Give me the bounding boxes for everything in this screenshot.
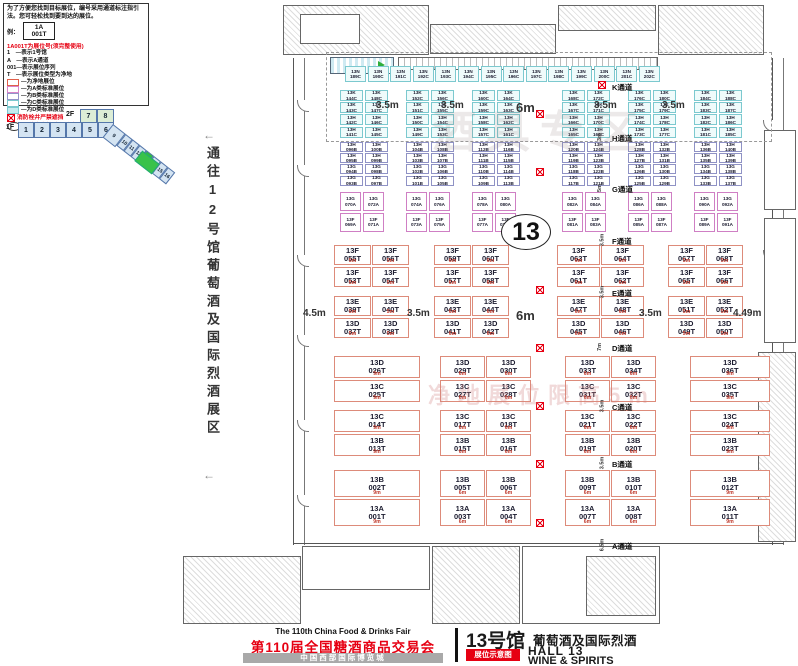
booth-13f-089a[interactable]: 13F089A [694,213,715,232]
booth-13a-008t[interactable]: 13A008T6m [611,499,656,526]
venue-name: 中国西部国际博览城 [243,653,443,663]
booth-13n-196c[interactable]: 13N196C [503,66,524,82]
booth-13g-138b[interactable]: 13G138B [719,164,742,174]
booth-13g-118b[interactable]: 13G118B [562,164,585,174]
booth-13f-083a[interactable]: 13F083A [585,213,606,232]
booth-13h-182c[interactable]: 13H182C [694,114,717,125]
booth-13b-019t[interactable]: 13B019T6m [565,434,610,456]
watermark-top: 酒具专区 [432,96,648,160]
booth-13h-139b[interactable]: 13H139B [719,153,742,163]
booth-13n-200c[interactable]: 13N200C [594,66,615,82]
booth-13e-047t[interactable]: 13E047T6m [557,296,600,316]
booth-13n-198c[interactable]: 13N198C [548,66,569,82]
booth-13f-061t[interactable]: 13F061T6m [557,267,600,287]
booth-13f-060t[interactable]: 13F060T6m [472,245,509,265]
booth-13c-025t[interactable]: 13C025T9m [334,380,420,402]
booth-13h-095b[interactable]: 13H095B [340,153,363,163]
booth-13c-035t[interactable]: 13C035T9m [690,380,770,402]
booth-13c-024t[interactable]: 13C024T9m [690,410,770,432]
booth-13g-113b[interactable]: 13G113B [497,176,520,186]
footer: The 110th China Food & Drinks Fair 第110届… [0,624,798,666]
left-wall [293,58,305,545]
booth-13e-044t[interactable]: 13E044T6m [472,296,509,316]
booth-13n-194c[interactable]: 13N194C [458,66,479,82]
booth-13d-036t[interactable]: 13D036T9m [690,356,770,378]
booth-13g-137b[interactable]: 13G137B [719,176,742,186]
booth-13f-062t[interactable]: 13F062T6m [601,267,644,287]
booth-13e-048t[interactable]: 13E048T6m [601,296,644,316]
booth-13k-187c[interactable]: 13K187C [719,102,742,113]
booth-13b-009t[interactable]: 13B009T6m [565,470,610,497]
booth-13c-017t[interactable]: 13C017T6m [440,410,485,432]
booth-13e-040t[interactable]: 13E040T5m [372,296,409,316]
booth-13f-059t[interactable]: 13F059T6m [434,245,471,265]
booth-13g-074a[interactable]: 13G074A [406,192,427,211]
booth-13h-142c[interactable]: 13H142C [340,114,363,125]
booth-13h-103b[interactable]: 13H103B [406,153,429,163]
booth-13b-012t[interactable]: 13B012T9m [690,470,770,497]
booth-13d-046t[interactable]: 13D046T6m [601,318,644,338]
aisle-label-a: A通道 [612,541,632,552]
booth-13g-106b[interactable]: 13G106B [431,164,454,174]
booth-13c-022t[interactable]: 13C022T6m [611,410,656,432]
booth-13g-070a[interactable]: 13G070A [340,192,361,211]
booth-13d-041t[interactable]: 13D041T6m [434,318,471,338]
fire-hydrant-icon [536,460,544,468]
hall-plan: 酒具专区 净地展位限高5m 13 13N189C13N190C13N191C13… [0,0,798,666]
booth-13a-011t[interactable]: 13A011T9m [690,499,770,526]
fair-name-en: The 110th China Food & Drinks Fair [238,627,448,636]
floor-plan-page: 为了方便您找到目标展位，编号采用通道标注指引法。您可轻松找到要到达的展位。 例：… [0,0,798,666]
booth-13g-117b[interactable]: 13G117B [562,176,585,186]
booth-13g-094b[interactable]: 13G094B [340,164,363,174]
booth-13b-013t[interactable]: 13B013T9m [334,434,420,456]
fire-hydrant-icon [536,344,544,352]
booth-13h-178c[interactable]: 13H178C [653,114,676,125]
booth-13g-126b[interactable]: 13G126B [628,164,651,174]
booth-13h-132b[interactable]: 13H132B [653,142,676,152]
booth-13g-082a[interactable]: 13G082A [562,192,583,211]
booth-13b-023t[interactable]: 13B023T9m [690,434,770,456]
booth-13f-066t[interactable]: 13F066T5m [706,267,743,287]
booth-13f-087a[interactable]: 13F087A [651,213,672,232]
building-top-mid [430,24,556,54]
booth-13g-092a[interactable]: 13G092A [717,192,738,211]
booth-13c-021t[interactable]: 13C021T6m [565,410,610,432]
booth-13d-034t[interactable]: 13D034T6m [611,356,656,378]
booth-13e-043t[interactable]: 13E043T6m [434,296,471,316]
booth-13c-014t[interactable]: 13C014T9m [334,410,420,432]
booth-13c-018t[interactable]: 13C018T6m [486,410,531,432]
booth-13d-033t[interactable]: 13D033T6m [565,356,610,378]
fire-hydrant-icon [536,168,544,176]
dimension-label: 3.5m [407,308,430,319]
booth-13f-077a[interactable]: 13F077A [472,213,493,232]
aisle-width-label: 3.5m [599,457,605,470]
booth-13f-065t[interactable]: 13F065T5m [668,267,705,287]
booth-13k-188c[interactable]: 13K188C [719,90,742,101]
booth-13d-030t[interactable]: 13D030T6m [486,356,531,378]
fire-hydrant-icon [536,519,544,527]
booth-13a-004t[interactable]: 13A004T6m [486,499,531,526]
booth-13h-181c[interactable]: 13H181C [694,127,717,138]
booth-13g-088a[interactable]: 13G088A [651,192,672,211]
building-bottom-mid-a [302,546,430,590]
booth-13h-141c[interactable]: 13H141C [340,127,363,138]
booth-13d-042t[interactable]: 13D042T6m [472,318,509,338]
booth-13n-201c[interactable]: 13N201C [616,66,637,82]
booth-13h-149c[interactable]: 13H149C [406,127,429,138]
booth-13a-001t[interactable]: 13A001T9m [334,499,420,526]
booth-13g-090a[interactable]: 13G090A [694,192,715,211]
aisle-width-label: 3.5m [599,234,605,247]
aisle-label-f: F通道 [612,236,632,247]
booth-13f-073a[interactable]: 13F073A [406,213,427,232]
booth-13h-150c[interactable]: 13H150C [406,114,429,125]
booth-13f-081a[interactable]: 13F081A [562,213,583,232]
booth-13f-068t[interactable]: 13F068T5m [706,245,743,265]
booth-13h-136b[interactable]: 13H136B [694,142,717,152]
booth-13f-091a[interactable]: 13F091A [717,213,738,232]
booth-13f-056t[interactable]: 13F056T5m [372,245,409,265]
booth-13g-097b[interactable]: 13G097B [365,176,388,186]
booth-13n-191c[interactable]: 13N191C [390,66,411,82]
building-top-right-a [558,5,656,31]
booth-13n-202c[interactable]: 13N202C [639,66,660,82]
booth-13d-045t[interactable]: 13D045T6m [557,318,600,338]
booth-13f-063t[interactable]: 13F063T6m [557,245,600,265]
booth-13f-053t[interactable]: 13F053T5m [334,267,371,287]
building-top-left-room [300,14,360,44]
booth-13h-131b[interactable]: 13H131B [653,153,676,163]
booth-13f-064t[interactable]: 13F064T6m [601,245,644,265]
booth-13b-005t[interactable]: 13B005T6m [440,470,485,497]
booth-13b-015t[interactable]: 13B015T6m [440,434,485,456]
booth-13e-039t[interactable]: 13E039T5m [334,296,371,316]
booth-13g-109b[interactable]: 13G109B [472,176,495,186]
booth-13g-105b[interactable]: 13G105B [431,176,454,186]
booth-13h-099b[interactable]: 13H099B [365,153,388,163]
booth-13d-029t[interactable]: 13D029T6m [440,356,485,378]
booth-13n-193c[interactable]: 13N193C [435,66,456,82]
booth-13k-144c[interactable]: 13K144C [340,90,363,101]
booth-13k-184c[interactable]: 13K184C [694,90,717,101]
bottom-wall [293,543,784,544]
booth-13g-129b[interactable]: 13G129B [653,176,676,186]
booth-13g-134b[interactable]: 13G134B [694,164,717,174]
aisle-width-label: 7m [597,343,603,351]
booth-13e-051t[interactable]: 13E051T5m [668,296,705,316]
booth-13b-020t[interactable]: 13B020T6m [611,434,656,456]
dimension-label: 4.49m [733,308,761,319]
aisle-width-label: 6.5m [599,539,605,552]
booth-13h-100b[interactable]: 13H100B [365,142,388,152]
booth-13g-114b[interactable]: 13G114B [497,164,520,174]
aisle-label-d: D通道 [612,343,632,354]
booth-13n-189c[interactable]: 13N189C [345,66,366,82]
booth-13d-038t[interactable]: 13D038T5m [372,318,409,338]
booth-13g-130b[interactable]: 13G130B [653,164,676,174]
booth-13h-145c[interactable]: 13H145C [365,127,388,138]
right-rooms-a [764,130,796,210]
fire-hydrant-icon [536,286,544,294]
booth-13g-080a[interactable]: 13G080A [495,192,516,211]
aisle-label-e: E通道 [612,288,632,299]
booth-13f-067t[interactable]: 13F067T5m [668,245,705,265]
booth-13g-076a[interactable]: 13G076A [429,192,450,211]
booth-13d-050t[interactable]: 13D050T5m [706,318,743,338]
booth-13g-101b[interactable]: 13G101B [406,176,429,186]
booth-13k-152c[interactable]: 13K152C [406,90,429,101]
hall-number-mark: 13 [501,214,551,250]
booth-13b-006t[interactable]: 13B006T6m [486,470,531,497]
booth-13k-143c[interactable]: 13K143C [340,102,363,113]
dimension-label: 4.5m [303,308,326,319]
booth-13b-010t[interactable]: 13B010T6m [611,470,656,497]
aisle-width-label: 3.5m [599,286,605,299]
booth-13n-190c[interactable]: 13N190C [368,66,389,82]
booth-13n-195c[interactable]: 13N195C [481,66,502,82]
dimension-label: 3.5m [662,100,685,111]
building-bottom-mid-b [432,546,520,624]
booth-13g-093b[interactable]: 13G093B [340,176,363,186]
booth-13n-199c[interactable]: 13N199C [571,66,592,82]
booth-13n-197c[interactable]: 13N197C [526,66,547,82]
building-bottom-right-room [586,556,656,616]
booth-13h-185c[interactable]: 13H185C [719,127,742,138]
footer-divider [455,628,458,662]
booth-13d-037t[interactable]: 13D037T5m [334,318,371,338]
booth-13g-078a[interactable]: 13G078A [472,192,493,211]
plan-badge: 展位示意图 [466,649,520,661]
booth-13h-135b[interactable]: 13H135B [694,153,717,163]
booth-13h-104b[interactable]: 13H104B [406,142,429,152]
booth-13h-140b[interactable]: 13H140B [719,142,742,152]
booth-13h-096b[interactable]: 13H096B [340,142,363,152]
booth-13b-002t[interactable]: 13B002T9m [334,470,420,497]
right-rooms-b [764,218,796,343]
booth-13g-133b[interactable]: 13G133B [694,176,717,186]
booth-13f-071a[interactable]: 13F071A [363,213,384,232]
aisle-label-g: G通道 [612,184,633,195]
booth-13a-007t[interactable]: 13A007T6m [565,499,610,526]
booth-13f-057t[interactable]: 13F057T6m [434,267,471,287]
booth-13g-110b[interactable]: 13G110B [472,164,495,174]
booth-13g-102b[interactable]: 13G102B [406,164,429,174]
booth-13f-055t[interactable]: 13F055T5m [334,245,371,265]
booth-13f-054t[interactable]: 13F054T5m [372,267,409,287]
booth-13g-122b[interactable]: 13G122B [587,164,610,174]
booth-13g-072a[interactable]: 13G072A [363,192,384,211]
booth-13n-192c[interactable]: 13N192C [413,66,434,82]
dimension-label: 6m [516,308,535,323]
aisle-label-k: K通道 [612,82,632,93]
booth-13h-146c[interactable]: 13H146C [365,114,388,125]
booth-13k-151c[interactable]: 13K151C [406,102,429,113]
fire-hydrant-icon [598,81,606,89]
booth-13f-069a[interactable]: 13F069A [340,213,361,232]
booth-13f-075a[interactable]: 13F075A [429,213,450,232]
booth-13d-049t[interactable]: 13D049T5m [668,318,705,338]
watermark-middle: 净地展位限高5m [428,378,656,410]
booth-13a-003t[interactable]: 13A003T6m [440,499,485,526]
booth-13d-026t[interactable]: 13D026T9m [334,356,420,378]
booth-13f-058t[interactable]: 13F058T6m [472,267,509,287]
aisle-label-b: B通道 [612,459,632,470]
booth-13k-183c[interactable]: 13K183C [694,102,717,113]
booth-13h-186c[interactable]: 13H186C [719,114,742,125]
booth-13b-016t[interactable]: 13B016T6m [486,434,531,456]
booth-13g-098b[interactable]: 13G098B [365,164,388,174]
category-en: WINE & SPIRITS [528,655,614,666]
booth-13g-084a[interactable]: 13G084A [585,192,606,211]
booth-13f-085a[interactable]: 13F085A [628,213,649,232]
building-bottom-left [183,556,301,624]
booth-13h-177c[interactable]: 13H177C [653,127,676,138]
dimension-label: 3.5m [376,100,399,111]
aisle-width-label: 5m [597,184,603,192]
building-top-right-b [658,5,764,55]
dimension-label: 3.5m [639,308,662,319]
